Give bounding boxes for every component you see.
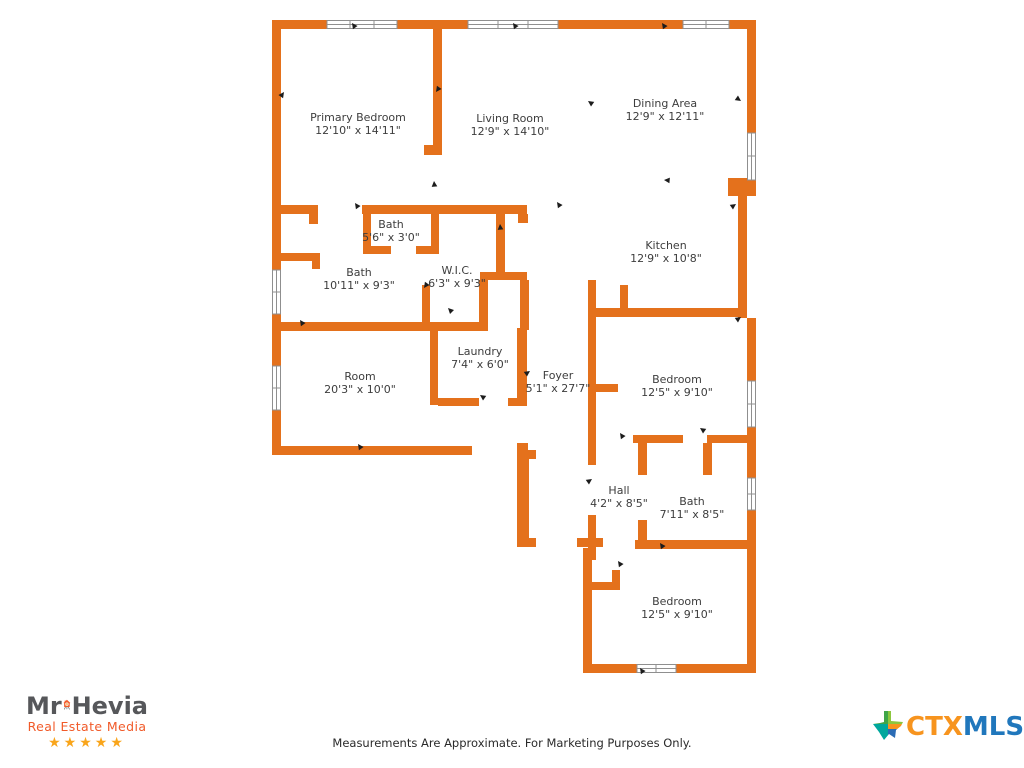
room-dims: 20'3" x 10'0" [324,383,396,396]
room-label-room: Room 20'3" x 10'0" [324,370,396,396]
room-name: Living Room [471,112,550,125]
room-name: Bath [362,218,420,231]
room-dims: 12'5" x 9'10" [641,608,713,621]
room-label-bath-2: Bath 10'11" x 9'3" [323,266,395,292]
room-label-wic: W.I.C. 6'3" x 9'3" [428,264,486,290]
room-name: W.I.C. [428,264,486,277]
room-label-primary-bedroom: Primary Bedroom 12'10" x 14'11" [310,111,406,137]
window [273,366,281,410]
room-label-dining-area: Dining Area 12'9" x 12'11" [626,97,705,123]
room-name: Bedroom [641,595,713,608]
room-dims: 6'3" x 9'3" [428,277,486,290]
room-name: Hall [590,484,648,497]
window [683,21,729,29]
room-label-laundry: Laundry 7'4" x 6'0" [451,345,509,371]
room-dims: 12'9" x 12'11" [626,110,705,123]
room-label-hall: Hall 4'2" x 8'5" [590,484,648,510]
mr-hevia-wordmark: Mr Hevia [26,683,148,718]
window [748,133,756,180]
room-label-foyer: Foyer 5'1" x 27'7" [526,369,591,395]
room-name: Room [324,370,396,383]
room-dims: 7'4" x 6'0" [451,358,509,371]
room-name: Dining Area [626,97,705,110]
disclaimer-text: Measurements Are Approximate. For Market… [332,736,691,750]
texas-state-icon [872,710,904,744]
room-name: Primary Bedroom [310,111,406,124]
window [327,21,397,29]
house-camera-tripod-icon [63,687,71,722]
mls-text: MLS [963,714,1024,740]
mr-hevia-hevia-text: Hevia [72,695,148,718]
room-name: Bedroom [641,373,713,386]
five-star-rating: ★★★★★ [26,735,148,751]
room-name: Kitchen [630,239,702,252]
ctxmls-logo: CTX MLS [872,710,1024,744]
room-name: Bath [660,495,725,508]
mr-hevia-logo: Mr Hevia Real Estate Med [26,683,148,751]
ctx-text: CTX [906,714,963,740]
mr-hevia-mr-text: Mr [26,695,62,718]
window [273,270,281,314]
room-label-living-room: Living Room 12'9" x 14'10" [471,112,550,138]
room-dims: 12'10" x 14'11" [310,124,406,137]
room-dims: 7'11" x 8'5" [660,508,725,521]
room-name: Laundry [451,345,509,358]
room-label-bath-1: Bath 5'6" x 3'0" [362,218,420,244]
window [468,21,558,29]
room-name: Bath [323,266,395,279]
floor-plan-page: Primary Bedroom 12'10" x 14'11" Living R… [0,0,1024,768]
room-dims: 12'9" x 10'8" [630,252,702,265]
room-dims: 10'11" x 9'3" [323,279,395,292]
window [748,381,756,427]
room-dims: 5'6" x 3'0" [362,231,420,244]
room-name: Foyer [526,369,591,382]
room-label-bedroom-1: Bedroom 12'5" x 9'10" [641,373,713,399]
room-dims: 12'9" x 14'10" [471,125,550,138]
room-dims: 5'1" x 27'7" [526,382,591,395]
room-dims: 4'2" x 8'5" [590,497,648,510]
room-label-bath-3: Bath 7'11" x 8'5" [660,495,725,521]
window [748,478,756,510]
room-label-kitchen: Kitchen 12'9" x 10'8" [630,239,702,265]
room-dims: 12'5" x 9'10" [641,386,713,399]
mr-hevia-tagline: Real Estate Media [26,719,148,734]
room-label-bedroom-2: Bedroom 12'5" x 9'10" [641,595,713,621]
